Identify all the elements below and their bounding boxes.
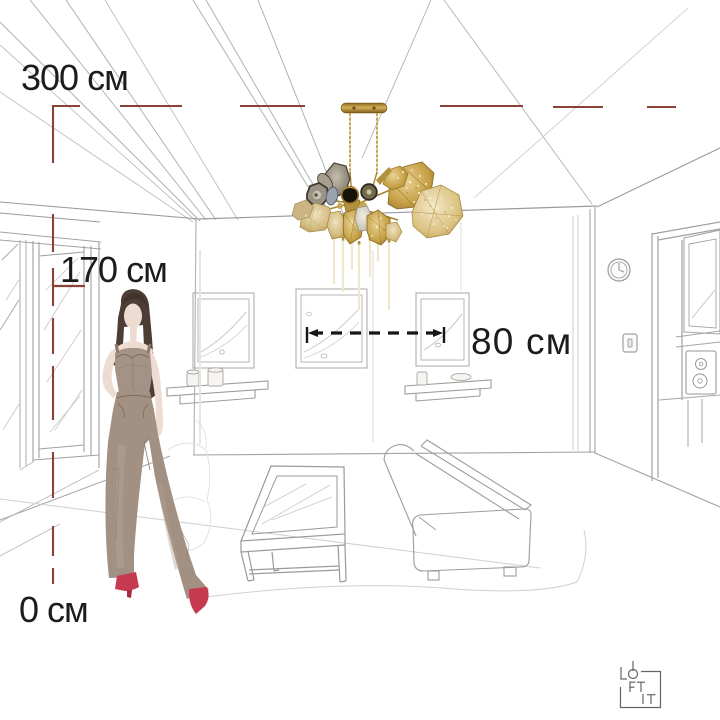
svg-text:80 см: 80 см — [471, 321, 572, 362]
svg-text:170 см: 170 см — [60, 249, 167, 290]
svg-text:300 см: 300 см — [21, 57, 128, 98]
svg-text:0 см: 0 см — [19, 589, 88, 630]
